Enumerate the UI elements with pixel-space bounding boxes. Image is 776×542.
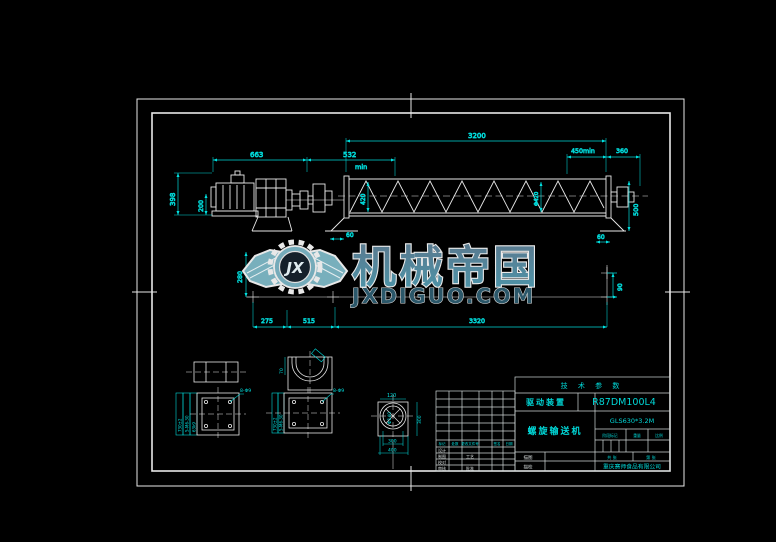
sig-design: 设计: [438, 447, 446, 453]
sig-header-mark: 标记: [439, 441, 447, 446]
sheets-total-label: 共 张: [607, 454, 618, 461]
dim-motor-height: 398: [169, 193, 177, 206]
flange-right-rot-label-1: 730±2: [273, 417, 278, 431]
dim-base-a: 275: [261, 318, 273, 325]
dim-motor-length: 663: [250, 151, 263, 159]
stage-mark-label: 阶段标记: [602, 433, 617, 438]
flange-view-right: 730±2 5-M6-30 8-Φ9: [266, 387, 344, 440]
screw-flights: [350, 181, 604, 212]
dim-360: 360: [616, 148, 628, 155]
dim-coupling-length: 532: [343, 151, 356, 159]
coupling-and-bearing: [286, 184, 358, 231]
end-view-bottom-inner-dim: 300: [388, 439, 397, 445]
sig-draft: 制图: [438, 453, 446, 459]
trough-section-dim: 70: [279, 368, 285, 374]
trough-section-view: 70: [279, 349, 332, 395]
company-name: 重庆赛师食品有限公司: [603, 463, 661, 471]
sig-header-sign: 签名: [494, 441, 501, 446]
end-view-right-dim: 300: [417, 415, 423, 424]
dim-right-height: 500: [632, 204, 640, 216]
flange-right-hole-callout: 8-Φ9: [333, 388, 344, 394]
flange-left-rot-label-3: 63k9: [192, 422, 197, 432]
detail-views: 730±2 5-M6-30 63k9 8-Φ9 70: [176, 349, 423, 469]
dim-base-height: 280: [237, 271, 244, 283]
dim-left-gap: 60: [346, 232, 354, 239]
sig-header-docno: 更改文件号: [461, 441, 479, 446]
trace-check-label: 描校: [524, 464, 533, 471]
dim-anchor-spacing: 90: [617, 283, 624, 291]
end-view-bore-label: Φ140: [387, 412, 393, 424]
flange-right-rot-label-2: 5-M6-30: [279, 414, 284, 431]
flange-view-left: 730±2 5-M6-30 63k9 8-Φ9: [176, 387, 251, 441]
scale-label: 比例: [655, 433, 663, 438]
drive-unit-model: R87DM100L4: [592, 397, 656, 408]
winged-gear-logo: JX: [243, 242, 347, 292]
cad-drawing-screenshot: 3200 663 532 450min 360 min 398 200 420 …: [0, 0, 776, 542]
logo-monogram: JX: [283, 259, 305, 277]
gearbox: [252, 179, 292, 231]
flange-top-view: [186, 362, 246, 382]
end-view-top-dim: 120: [387, 393, 396, 399]
flange-left-hole-callout: 8-Φ9: [240, 388, 251, 394]
sig-proof: 校对: [438, 459, 446, 465]
product-model: GLS630*3.2M: [610, 417, 654, 425]
title-block: 技 术 参 数 驱动装置 R87DM100L4 螺旋输送机 GLS630*3.2…: [436, 377, 670, 471]
sig-approve: 批准: [466, 465, 474, 471]
flange-left-rot-label-1: 730±2: [178, 418, 183, 432]
dim-min-note: min: [355, 163, 367, 171]
motor: [211, 171, 258, 216]
watermark-domain-text: JXDIGUO.COM: [350, 284, 535, 308]
end-view: 120 300 300 400 Φ140: [371, 393, 423, 469]
watermark: JX 机械帝国 JXDIGUO.COM: [243, 242, 540, 308]
weight-label: 重量: [633, 433, 641, 438]
dim-base-total: 3320: [469, 318, 485, 325]
tech-params-heading: 技 术 参 数: [561, 381, 624, 390]
end-view-bottom-outer-dim: 400: [388, 448, 397, 454]
product-name: 螺旋输送机: [527, 425, 582, 437]
dim-base-b: 515: [303, 318, 315, 325]
dim-right-gap: 60: [597, 234, 605, 241]
sig-header-count: 处数: [452, 441, 460, 446]
drawing-canvas: 3200 663 532 450min 360 min 398 200 420 …: [0, 0, 776, 542]
sheet-no-label: 第 张: [646, 454, 657, 461]
sig-audit: 审核: [438, 465, 446, 471]
trace-draw-label: 描图: [524, 454, 533, 461]
sig-header-date: 日期: [506, 441, 514, 446]
dim-450min: 450min: [571, 148, 595, 155]
section-tag: [311, 349, 325, 362]
dim-motor-center: 200: [198, 200, 205, 212]
flange-left-rot-label-2: 5-M6-30: [185, 415, 190, 432]
dim-screw-dia-left: 420: [360, 193, 367, 205]
dim-screw-dia-right: Φ420: [534, 191, 540, 206]
drive-unit-label: 驱动装置: [526, 397, 566, 407]
sig-process: 工艺: [466, 454, 474, 459]
dim-total-length: 3200: [468, 132, 486, 140]
